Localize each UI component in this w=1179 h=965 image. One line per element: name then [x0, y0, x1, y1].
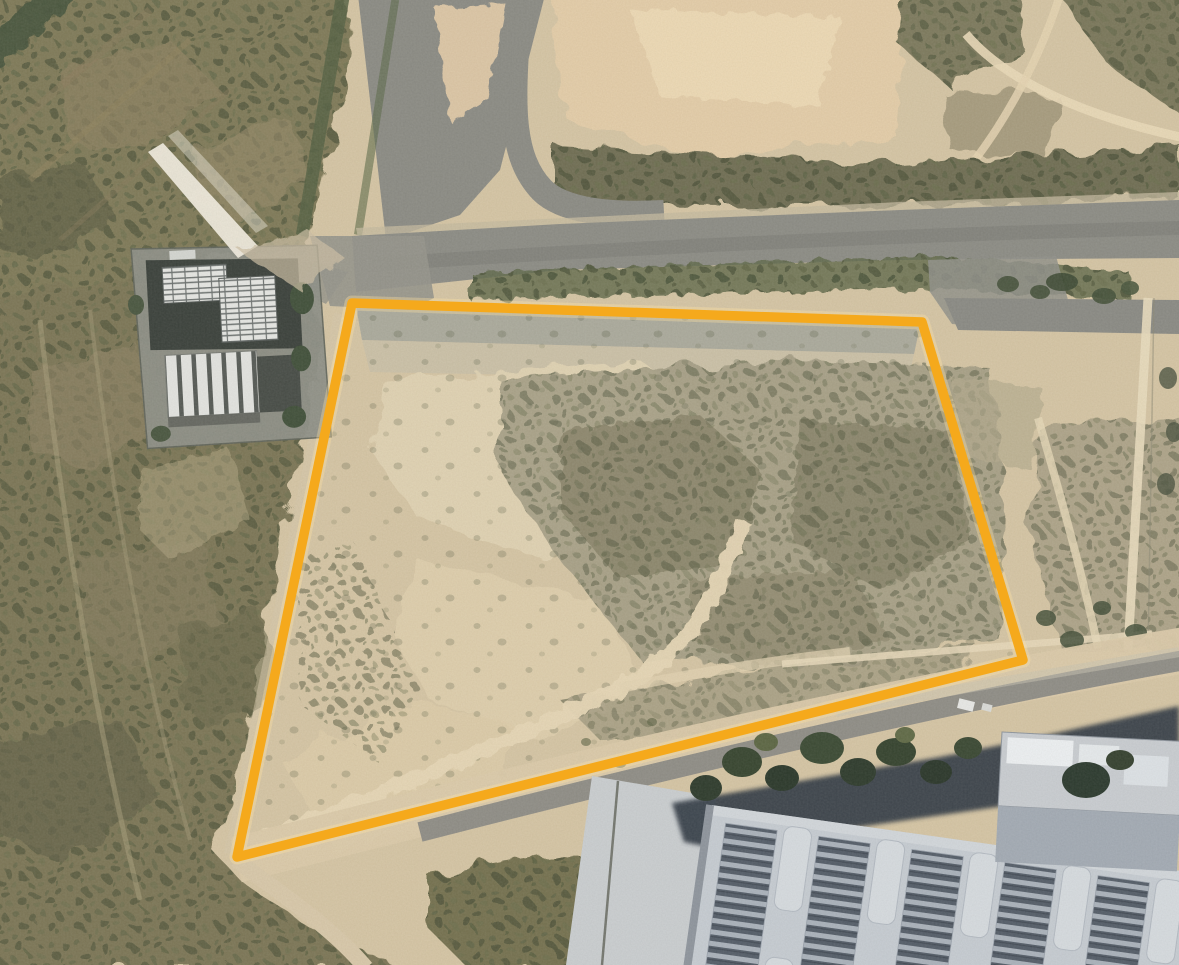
aerial-imagery[interactable]: Aerial satellite view of vacant land par…: [0, 0, 1179, 965]
grain-overlay: [0, 0, 1179, 965]
satellite-map-view[interactable]: Aerial satellite view of vacant land par…: [0, 0, 1179, 965]
